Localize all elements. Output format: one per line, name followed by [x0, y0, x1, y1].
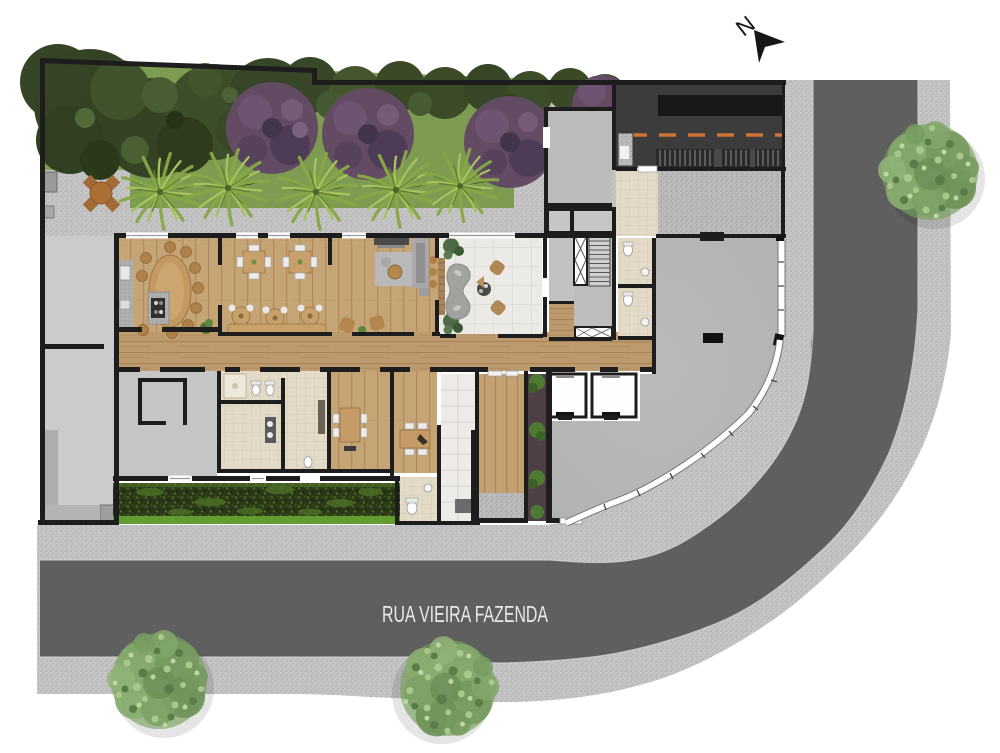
svg-text:RUA VIEIRA FAZENDA: RUA VIEIRA FAZENDA: [382, 601, 548, 627]
